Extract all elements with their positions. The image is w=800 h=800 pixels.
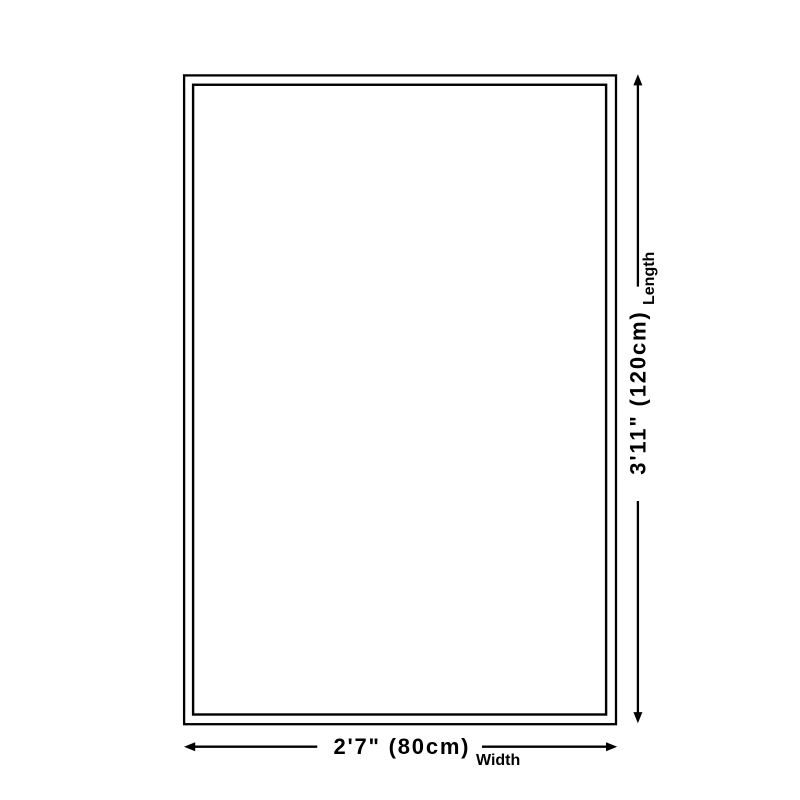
svg-text:2'7" (80cm): 2'7" (80cm) xyxy=(334,734,469,759)
svg-text:Width: Width xyxy=(476,752,520,769)
svg-text:Length: Length xyxy=(641,252,658,305)
svg-text:3'11" (120cm): 3'11" (120cm) xyxy=(625,312,650,475)
